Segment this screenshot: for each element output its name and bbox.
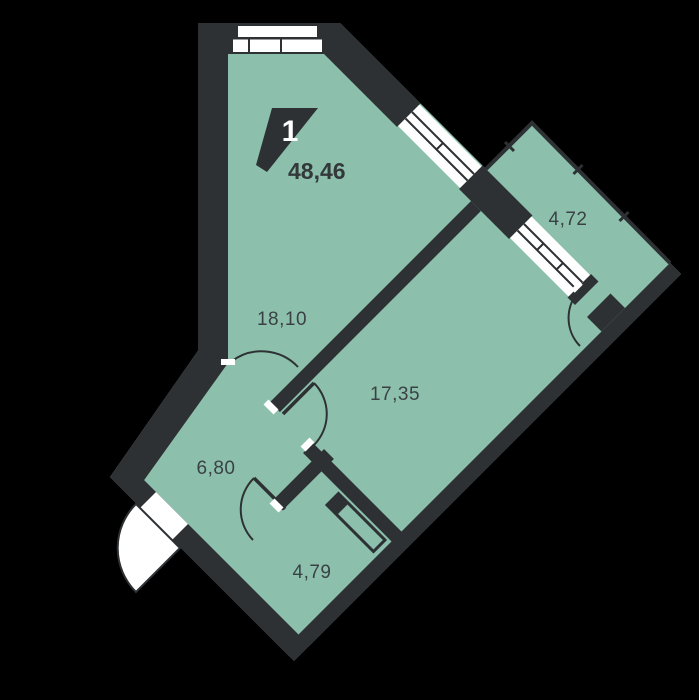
total-area-label: 48,46 [288,158,346,184]
label-balcony: 4,72 [549,209,588,230]
top-window-frame [233,40,322,53]
floor-plan: 1 48,46 18,10 17,35 6,80 4,79 4,72 [0,0,699,700]
top-window-sill [238,26,317,37]
unit-number: 1 [282,115,299,148]
wall-left [198,23,228,361]
label-room-large: 18,10 [257,309,307,330]
floor-plan-canvas: 1 48,46 18,10 17,35 6,80 4,79 4,72 [0,0,699,700]
label-hallway: 6,80 [197,458,236,479]
label-room-living: 17,35 [370,384,420,405]
label-bathroom: 4,79 [293,562,332,583]
